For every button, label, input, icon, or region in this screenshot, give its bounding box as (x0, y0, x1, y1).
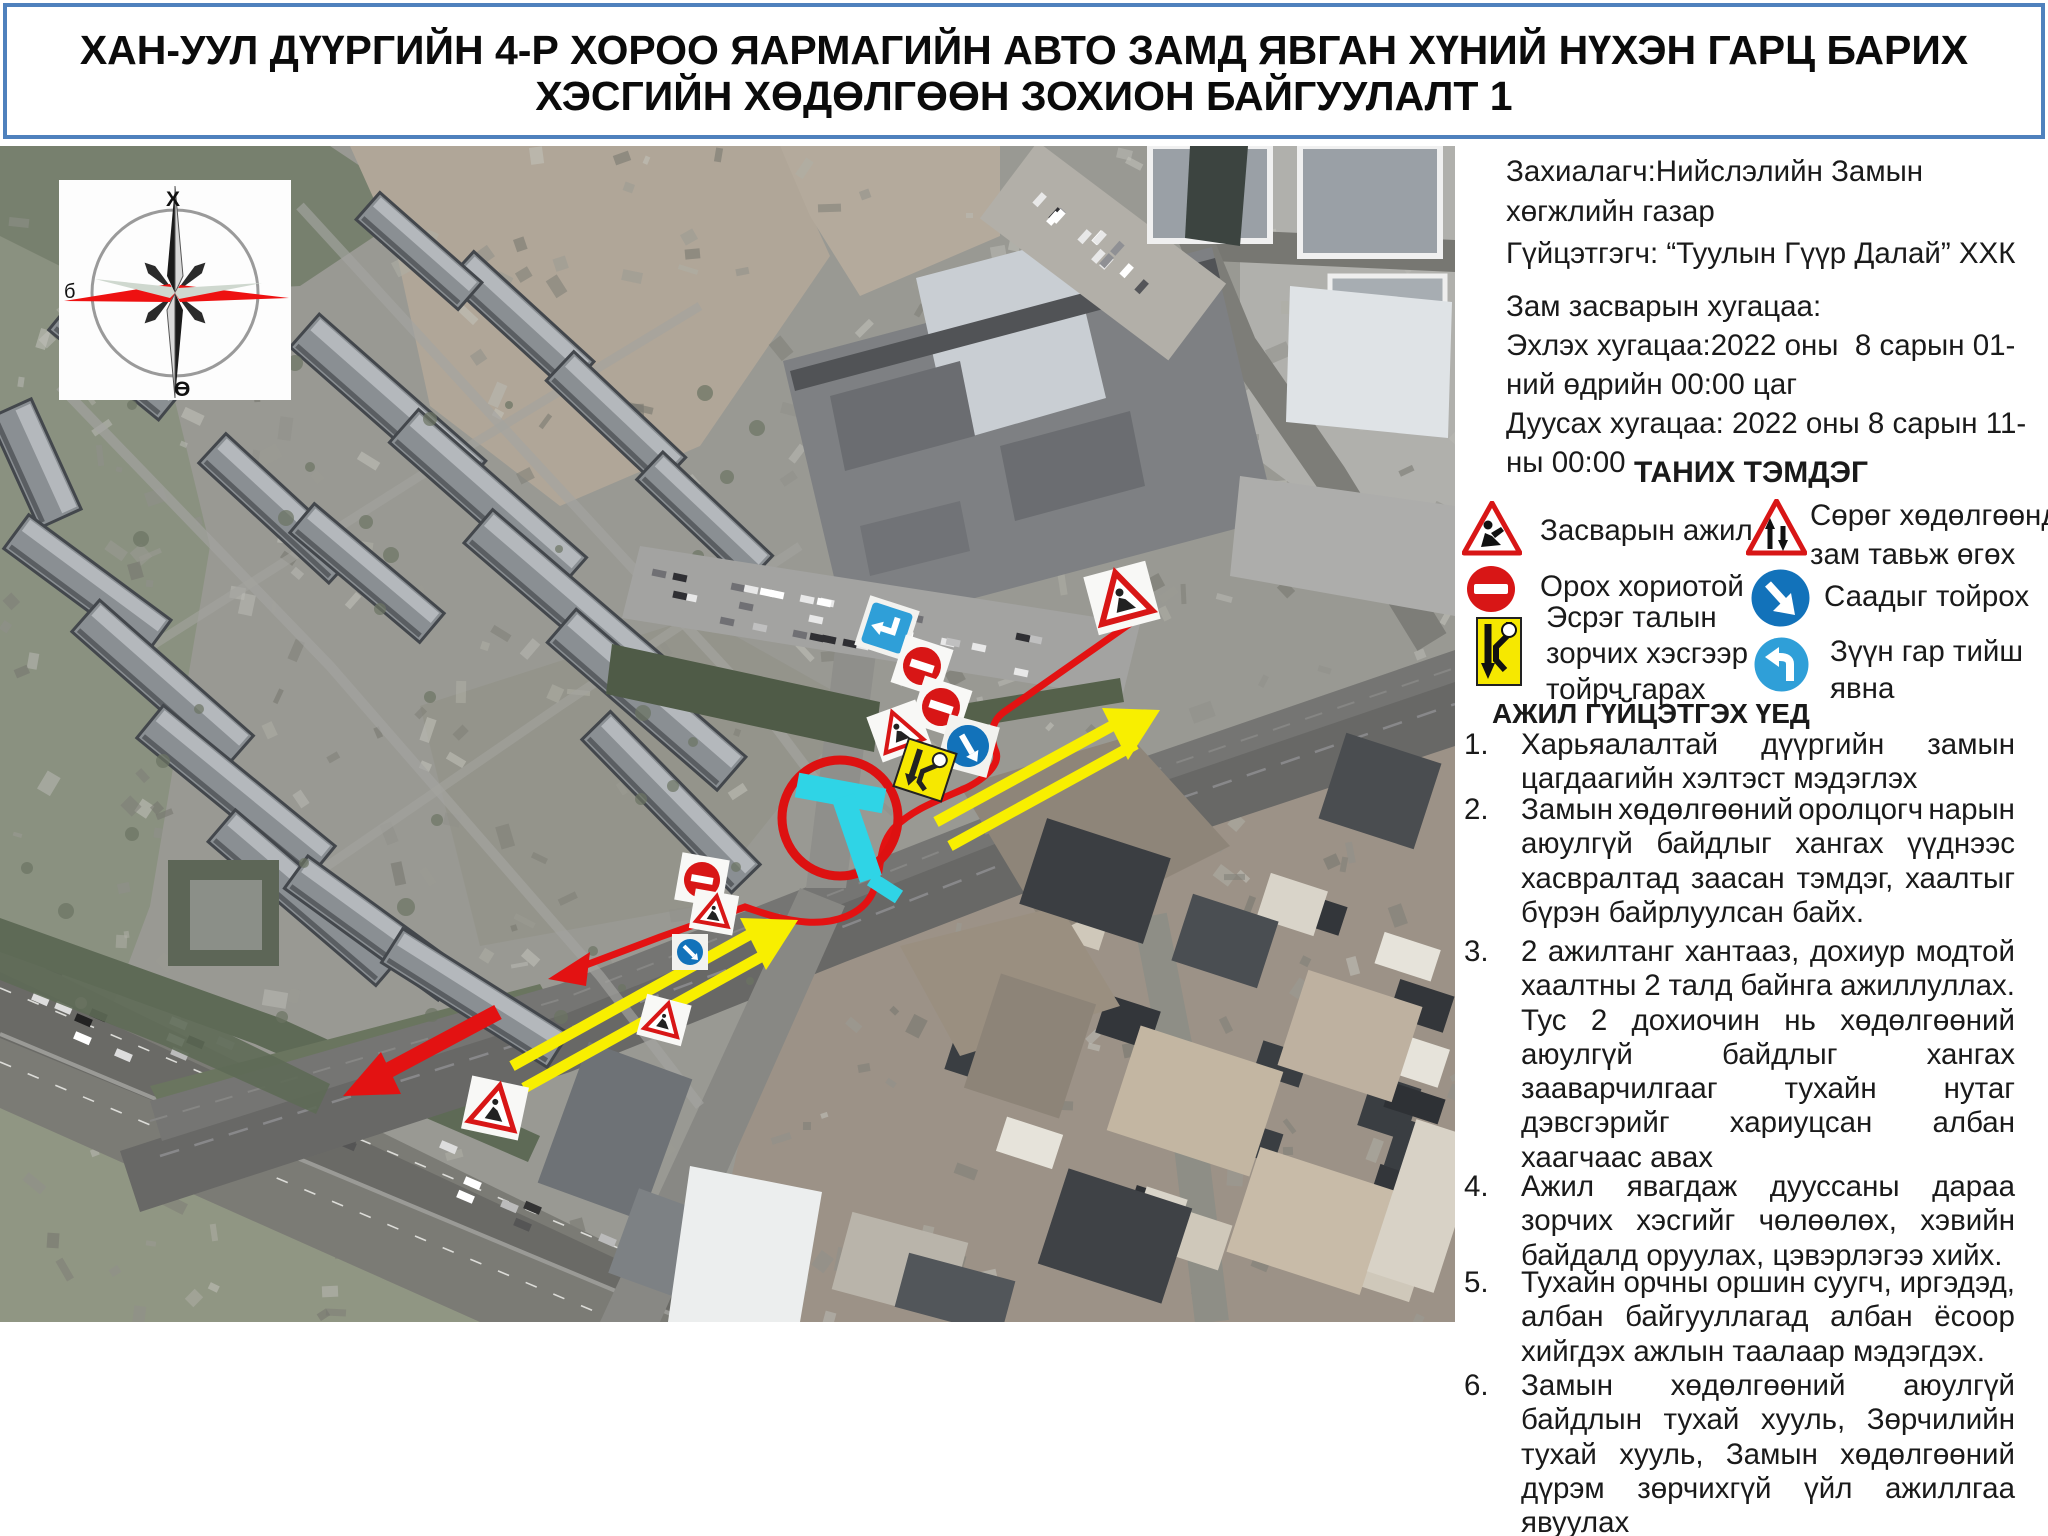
svg-text:Х: Х (166, 188, 180, 211)
svg-text:б: б (64, 281, 75, 303)
svg-text:Ө: Ө (174, 378, 190, 401)
